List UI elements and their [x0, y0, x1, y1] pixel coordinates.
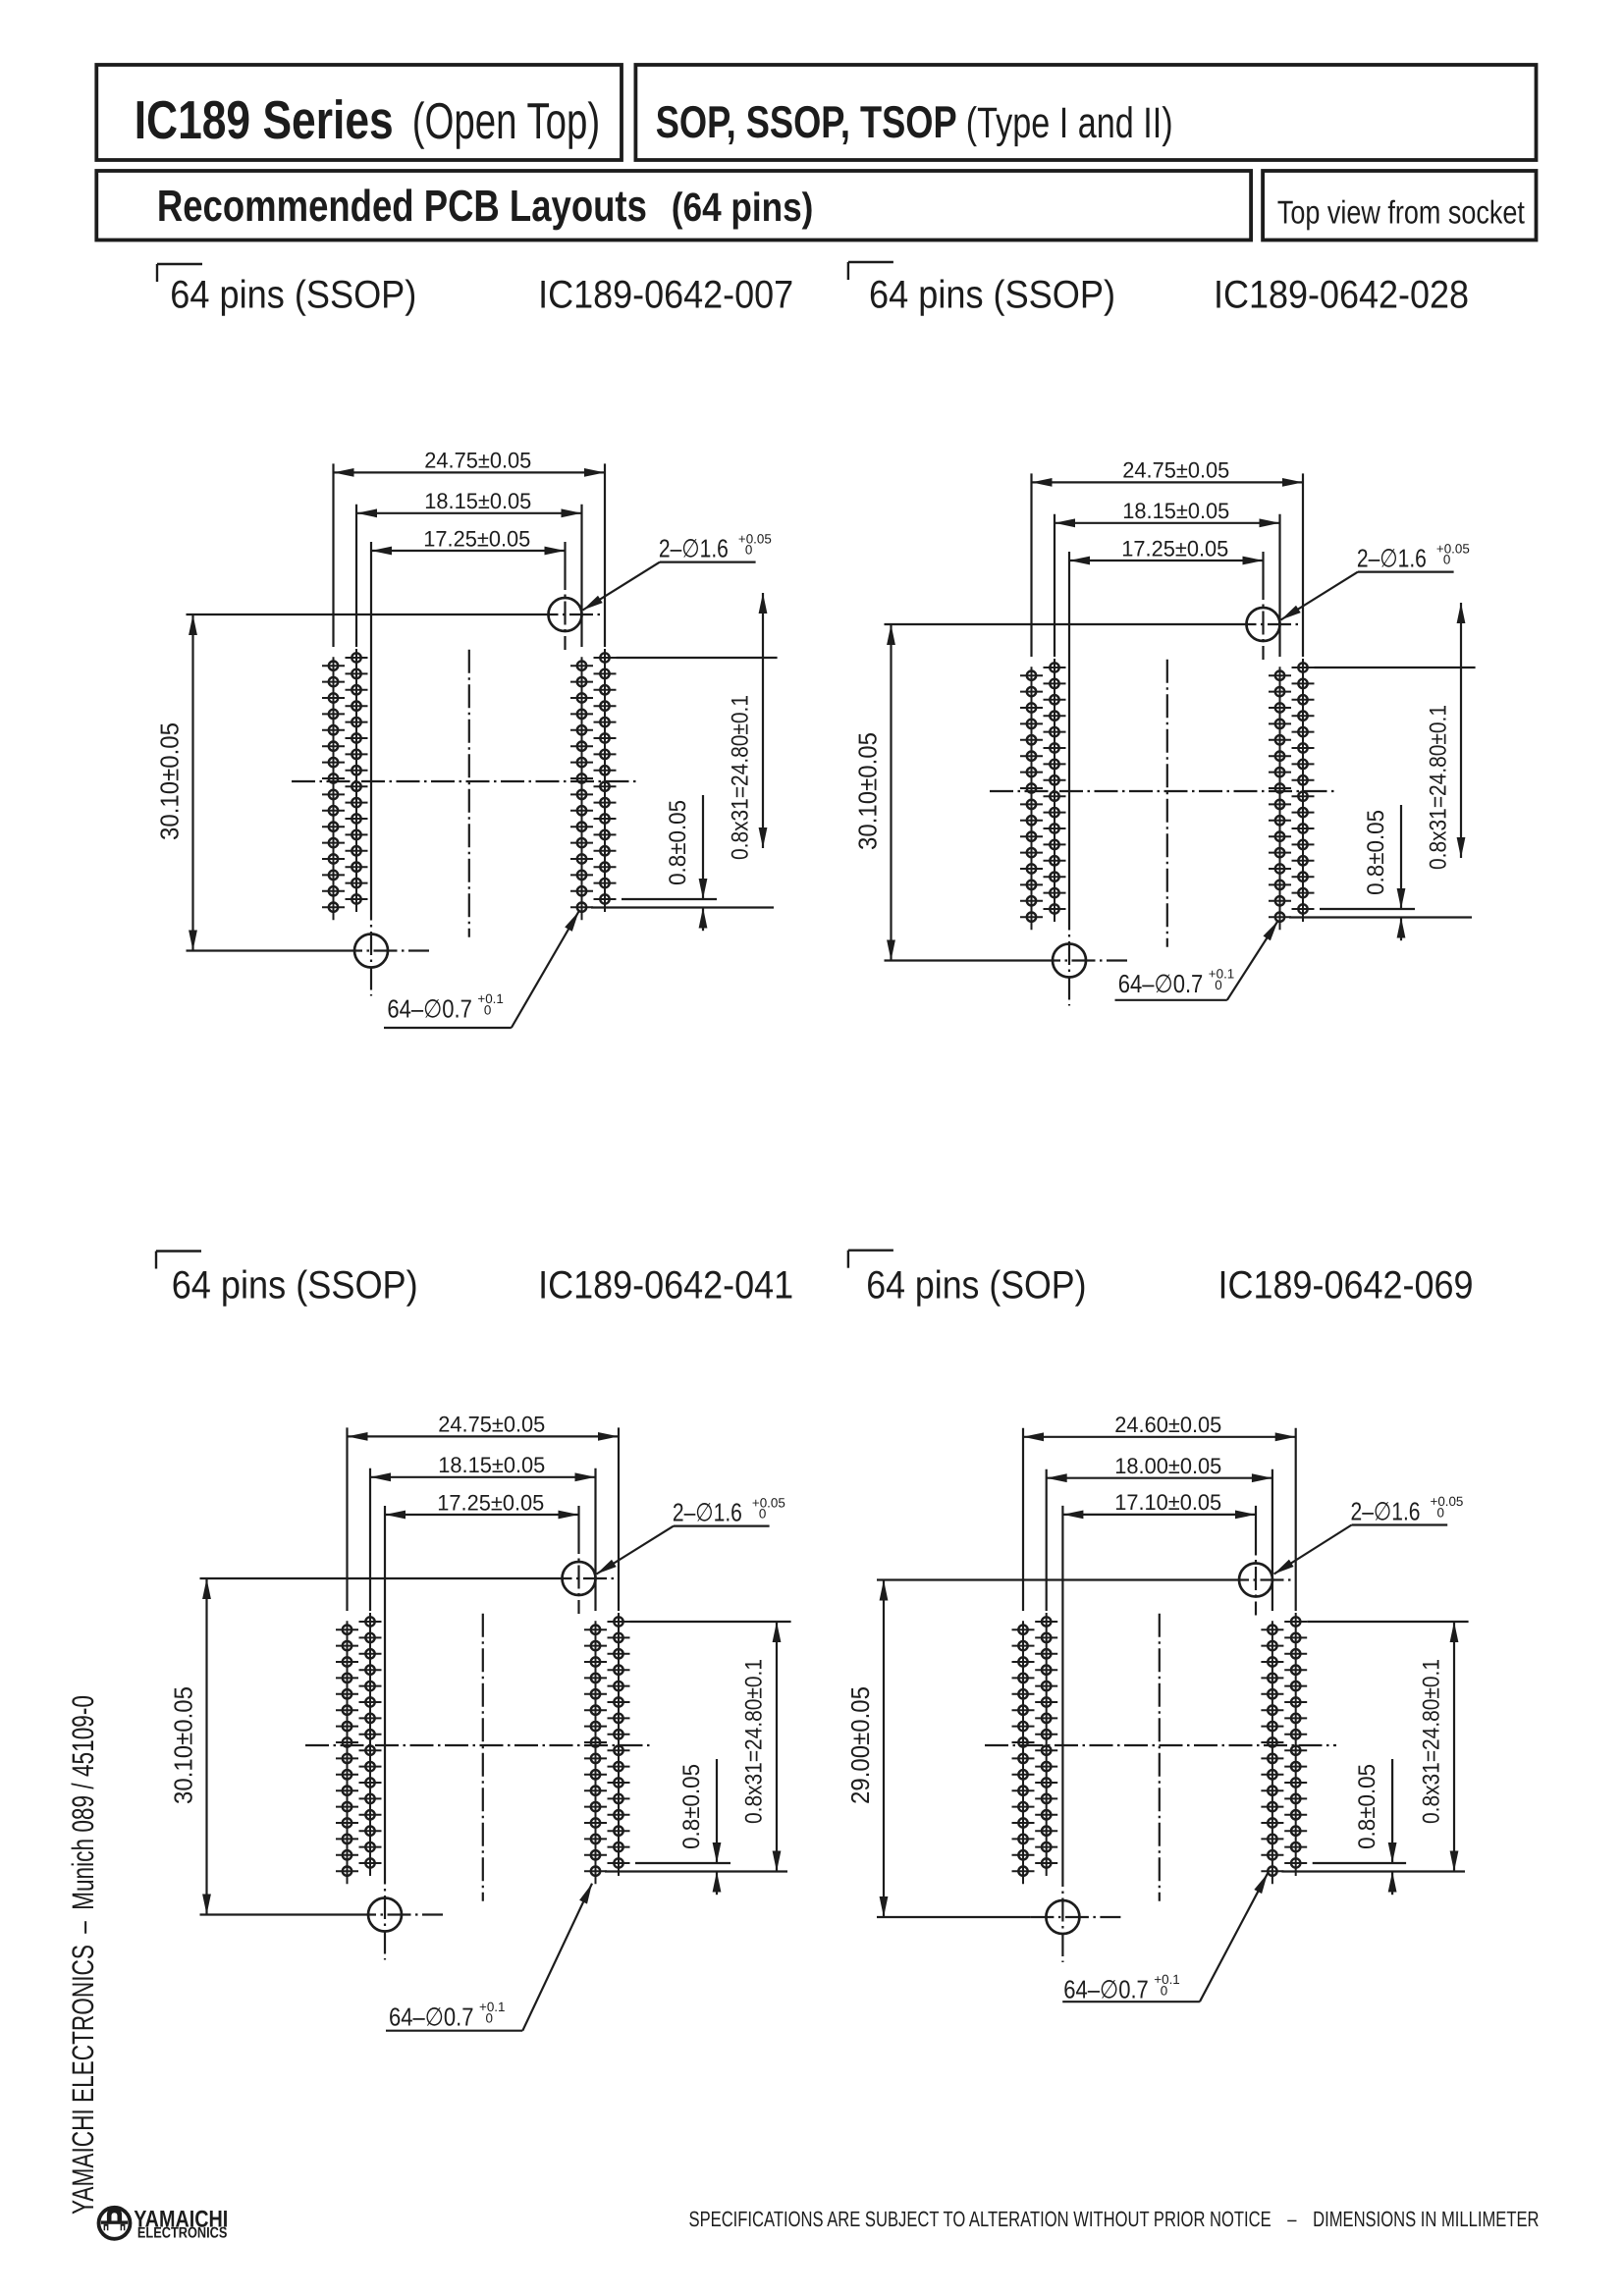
svg-text:0: 0 — [759, 1507, 766, 1522]
svg-text:SOP, SSOP, TSOP: SOP, SSOP, TSOP — [656, 96, 957, 147]
svg-text:17.25±0.05: 17.25±0.05 — [437, 1490, 544, 1515]
svg-text:30.10±0.05: 30.10±0.05 — [169, 1686, 198, 1804]
svg-text:17.10±0.05: 17.10±0.05 — [1114, 1490, 1221, 1515]
svg-text:2–∅1.6: 2–∅1.6 — [673, 1498, 742, 1527]
svg-text:+0.05: +0.05 — [752, 1495, 785, 1510]
svg-text:17.25±0.05: 17.25±0.05 — [1121, 536, 1228, 561]
svg-text:+0.05: +0.05 — [738, 531, 772, 546]
svg-text:30.10±0.05: 30.10±0.05 — [155, 722, 185, 840]
svg-text:Recommended PCB Layouts: Recommended PCB Layouts — [157, 181, 647, 231]
svg-text:18.15±0.05: 18.15±0.05 — [1122, 499, 1229, 523]
svg-text:IC189-0642-069: IC189-0642-069 — [1218, 1264, 1474, 1308]
svg-text:0.8±0.05: 0.8±0.05 — [678, 1764, 705, 1849]
svg-text:IC189-0642-028: IC189-0642-028 — [1214, 274, 1469, 317]
svg-text:18.00±0.05: 18.00±0.05 — [1114, 1454, 1221, 1478]
svg-text:24.75±0.05: 24.75±0.05 — [1122, 458, 1229, 483]
svg-text:18.15±0.05: 18.15±0.05 — [438, 1453, 545, 1477]
svg-text:2–∅1.6: 2–∅1.6 — [659, 534, 729, 563]
svg-text:0: 0 — [745, 543, 752, 558]
svg-text:17.25±0.05: 17.25±0.05 — [423, 526, 530, 551]
svg-text:64 pins (SOP): 64 pins (SOP) — [866, 1264, 1086, 1308]
svg-text:0.8x31=24.80±0.1: 0.8x31=24.80±0.1 — [1425, 705, 1451, 870]
svg-text:(Type I and II): (Type I and II) — [966, 99, 1173, 147]
svg-text:0: 0 — [1443, 553, 1450, 567]
svg-text:0: 0 — [1161, 1984, 1167, 1999]
svg-text:IC189-0642-041: IC189-0642-041 — [538, 1264, 793, 1308]
svg-text:0: 0 — [1215, 978, 1221, 992]
svg-text:SPECIFICATIONS ARE SUBJECT TO: SPECIFICATIONS ARE SUBJECT TO ALTERATION… — [689, 2207, 1540, 2231]
svg-text:0: 0 — [1437, 1506, 1444, 1521]
svg-text:64 pins (SSOP): 64 pins (SSOP) — [172, 1264, 418, 1308]
svg-text:64 pins (SSOP): 64 pins (SSOP) — [170, 274, 416, 317]
svg-text:24.60±0.05: 24.60±0.05 — [1114, 1413, 1221, 1437]
svg-text:0: 0 — [484, 1003, 491, 1018]
svg-text:30.10±0.05: 30.10±0.05 — [853, 732, 883, 850]
svg-text:0.8x31=24.80±0.1: 0.8x31=24.80±0.1 — [727, 695, 753, 860]
svg-text:64–∅0.7: 64–∅0.7 — [389, 2002, 474, 2032]
svg-text:0.8±0.05: 0.8±0.05 — [1363, 810, 1389, 895]
svg-text:0.8±0.05: 0.8±0.05 — [1354, 1764, 1380, 1849]
svg-text:64–∅0.7: 64–∅0.7 — [387, 994, 472, 1024]
svg-text:2–∅1.6: 2–∅1.6 — [1357, 544, 1427, 573]
svg-text:2–∅1.6: 2–∅1.6 — [1351, 1497, 1421, 1526]
svg-text:24.75±0.05: 24.75±0.05 — [424, 449, 531, 473]
svg-text:+0.05: +0.05 — [1431, 1494, 1464, 1509]
svg-text:YAMAICHI ELECTRONICS – Munich: YAMAICHI ELECTRONICS – Munich 089 / 4510… — [66, 1695, 100, 2215]
svg-text:64–∅0.7: 64–∅0.7 — [1118, 969, 1204, 998]
svg-text:+0.05: +0.05 — [1436, 541, 1470, 556]
svg-text:ELECTRONICS: ELECTRONICS — [137, 2225, 228, 2242]
svg-text:0.8x31=24.80±0.1: 0.8x31=24.80±0.1 — [1418, 1659, 1444, 1824]
svg-text:64 pins (SSOP): 64 pins (SSOP) — [869, 274, 1115, 317]
svg-text:0.8x31=24.80±0.1: 0.8x31=24.80±0.1 — [740, 1659, 767, 1824]
svg-text:IC189 Series: IC189 Series — [135, 89, 394, 150]
svg-text:IC189-0642-007: IC189-0642-007 — [538, 274, 793, 317]
svg-text:18.15±0.05: 18.15±0.05 — [424, 489, 531, 513]
svg-text:(64 pins): (64 pins) — [672, 185, 814, 230]
svg-text:64–∅0.7: 64–∅0.7 — [1063, 1975, 1149, 2004]
svg-text:29.00±0.05: 29.00±0.05 — [845, 1686, 875, 1804]
svg-text:(Open Top): (Open Top) — [412, 93, 601, 150]
svg-text:24.75±0.05: 24.75±0.05 — [438, 1413, 545, 1437]
svg-text:0.8±0.05: 0.8±0.05 — [665, 800, 691, 885]
svg-text:0: 0 — [486, 2011, 493, 2026]
svg-text:Top view from socket: Top view from socket — [1277, 194, 1525, 231]
